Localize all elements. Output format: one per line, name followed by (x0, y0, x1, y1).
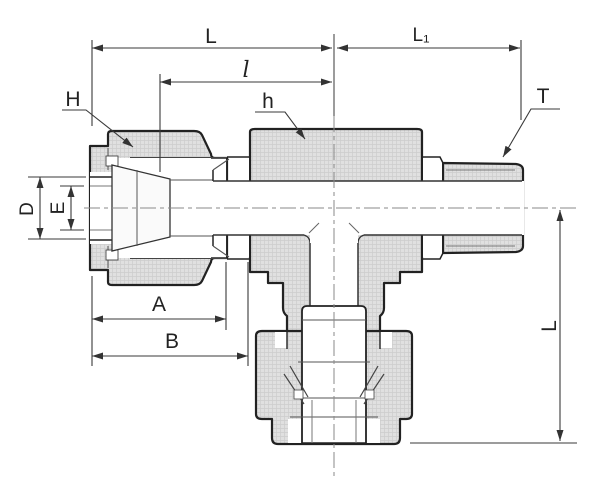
drawing-canvas: L l L₁ H h T D E A B L (0, 0, 603, 485)
dim-label-B: B (165, 330, 179, 353)
callout-T: T (503, 85, 560, 157)
dim-label-l: l (242, 58, 249, 83)
callout-label-h: h (262, 90, 274, 113)
dim-A: A (92, 293, 226, 319)
dim-L-top: L (92, 25, 332, 48)
callout-H: H (62, 88, 133, 147)
dim-L-right: L (538, 210, 561, 441)
dim-label-L-right: L (538, 320, 561, 332)
dim-B: B (92, 330, 248, 356)
dim-label-A: A (152, 293, 166, 316)
dim-label-L1: L₁ (413, 25, 430, 46)
fitting-technical-drawing: L l L₁ H h T D E A B L (0, 0, 603, 485)
dim-E: E (48, 186, 71, 230)
dim-l-inner: l (160, 58, 332, 83)
body-section (227, 129, 523, 350)
callout-label-T: T (537, 85, 550, 108)
dim-D: D (17, 177, 40, 239)
dim-label-E: E (48, 202, 69, 215)
dim-label-D: D (17, 202, 38, 216)
callout-label-H: H (65, 88, 80, 111)
dim-L1: L₁ (337, 25, 520, 48)
dim-label-L-top: L (205, 25, 217, 48)
